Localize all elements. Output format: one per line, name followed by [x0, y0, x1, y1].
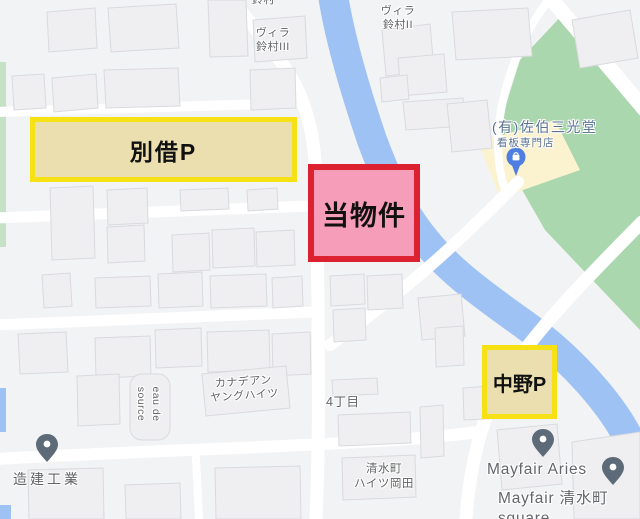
annotation-nakano-parking: 中野P — [482, 345, 557, 419]
label-villa-suzumura-3[interactable]: ヴィラ 鈴村III — [256, 26, 291, 55]
label-mayfair-square[interactable]: Mayfair 清水町 square — [498, 489, 640, 519]
label-saeki-sankodo[interactable]: (有)佐伯三光堂 — [492, 118, 597, 136]
label-yonchome: 4丁目 — [326, 394, 359, 410]
annotation-betsukari-parking: 別借P — [30, 117, 297, 182]
label-shimizucho-heights[interactable]: 清水町 ハイツ岡田 — [354, 462, 414, 492]
label-zoken-kogyo[interactable]: 造建工業 — [13, 470, 81, 488]
label-mayfair-aries[interactable]: Mayfair Aries — [487, 460, 587, 480]
annotation-nakano-label: 中野P — [493, 368, 546, 397]
label-saeki-subtitle[interactable]: 看板専門店 — [497, 137, 555, 151]
annotation-subject-property-label: 当物件 — [322, 194, 406, 233]
label-villa-suzumura-2[interactable]: ヴィラ 鈴村II — [381, 4, 416, 33]
label-suzumura-clipped: 鈴村 — [252, 0, 275, 7]
annotation-betsukari-label: 別借P — [130, 133, 197, 167]
label-eau-de-source[interactable]: eau de source — [133, 386, 163, 421]
annotation-subject-property: 当物件 — [308, 164, 420, 262]
label-canadian-heights[interactable]: カナデアン ヤングハイツ — [209, 373, 280, 406]
map-canvas: 鈴村 ヴィラ 鈴村III ヴィラ 鈴村II (有)佐伯三光堂 看板専門店 カナデ… — [0, 0, 640, 519]
